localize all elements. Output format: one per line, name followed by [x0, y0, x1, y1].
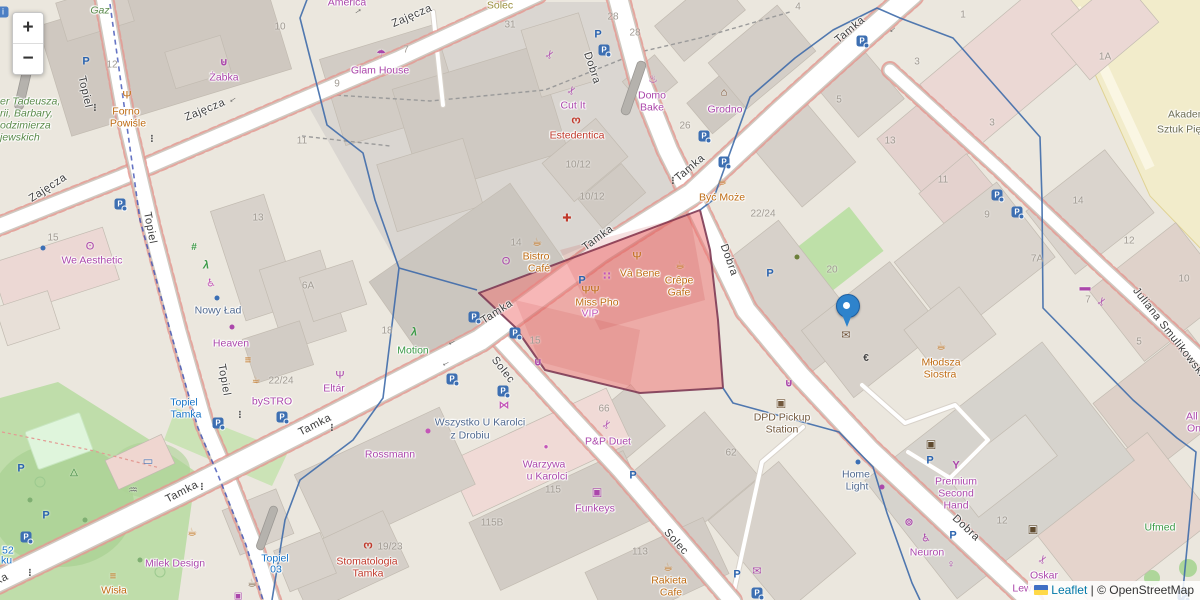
- marker-dot: [843, 302, 850, 309]
- copyright-prefix: ©: [1097, 583, 1109, 597]
- marker-tail: [841, 312, 853, 327]
- zoom-in-button[interactable]: +: [13, 13, 43, 43]
- attribution-separator: |: [1087, 583, 1097, 597]
- leaflet-link[interactable]: Leaflet: [1051, 583, 1087, 597]
- ukraine-flag-icon: [1034, 585, 1048, 595]
- attribution-bar: Leaflet | © OpenStreetMap: [1028, 581, 1200, 600]
- zoom-control: + −: [12, 12, 44, 75]
- openstreetmap-link[interactable]: OpenStreetMap: [1109, 583, 1194, 597]
- zoom-out-button[interactable]: −: [13, 43, 43, 74]
- map-canvas[interactable]: TamkaTamkaTamkaTamkaTamkaTamkaTamkaDobra…: [0, 0, 1200, 600]
- map-tiles: [0, 0, 1200, 600]
